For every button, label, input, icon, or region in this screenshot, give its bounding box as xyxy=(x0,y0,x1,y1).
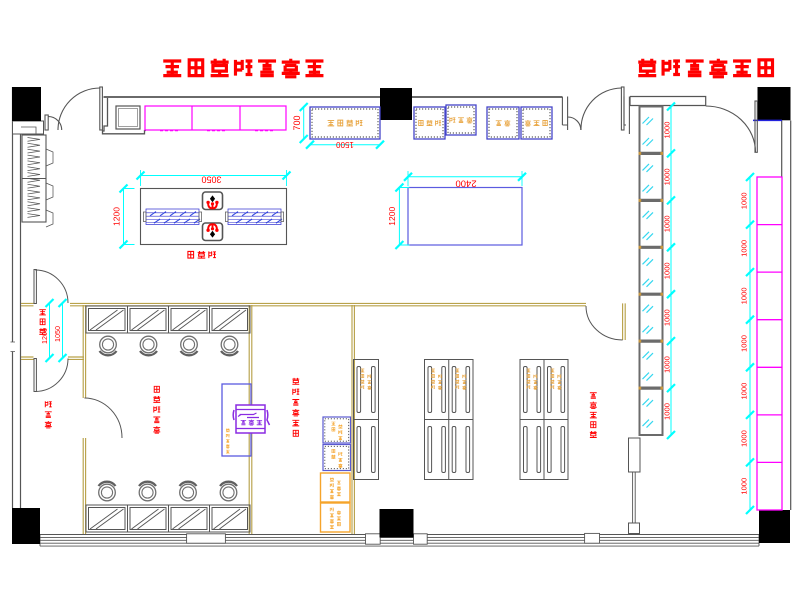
svg-text:2400: 2400 xyxy=(455,178,476,189)
svg-text:1000: 1000 xyxy=(740,192,749,209)
svg-text:3050: 3050 xyxy=(201,175,221,185)
svg-text:1200: 1200 xyxy=(112,207,122,226)
svg-text:1200: 1200 xyxy=(40,328,49,344)
svg-text:1000: 1000 xyxy=(663,403,672,420)
svg-text:1000: 1000 xyxy=(740,287,749,304)
svg-text:1000: 1000 xyxy=(663,215,672,232)
svg-text:1500: 1500 xyxy=(336,140,354,149)
svg-text:1000: 1000 xyxy=(740,383,749,400)
svg-text:1200: 1200 xyxy=(387,207,397,226)
svg-text:1050: 1050 xyxy=(53,326,62,342)
svg-text:1000: 1000 xyxy=(663,262,672,279)
svg-text:1000: 1000 xyxy=(663,356,672,373)
svg-text:1000: 1000 xyxy=(663,309,672,326)
svg-text:1000: 1000 xyxy=(740,430,749,447)
svg-text:1000: 1000 xyxy=(663,168,672,185)
svg-text:1000: 1000 xyxy=(740,240,749,257)
svg-text:1000: 1000 xyxy=(740,335,749,352)
svg-text:1000: 1000 xyxy=(740,478,749,495)
svg-text:1000: 1000 xyxy=(663,122,672,139)
svg-text:700: 700 xyxy=(292,115,302,130)
